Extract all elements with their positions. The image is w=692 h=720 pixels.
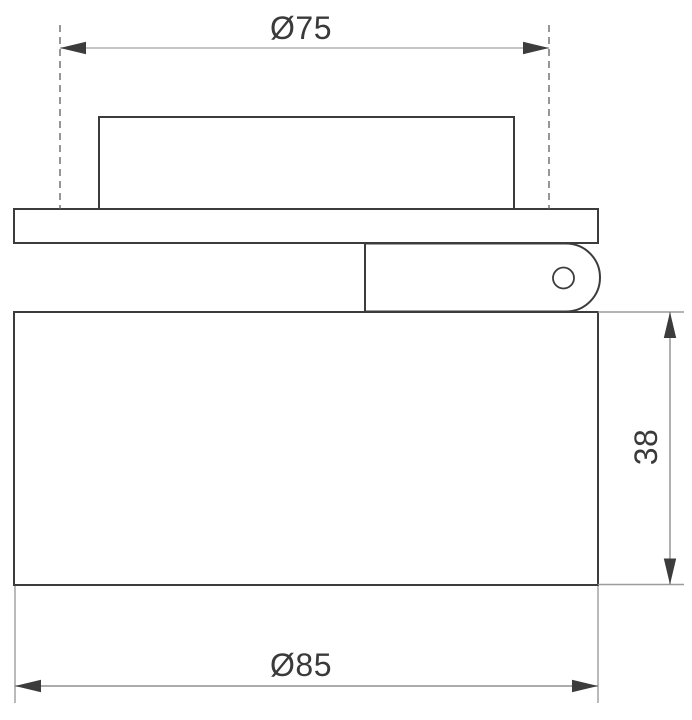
mounting-flange bbox=[14, 209, 598, 243]
dim75-arrow-left-icon bbox=[60, 42, 86, 54]
fixture-body bbox=[14, 312, 598, 585]
drawing-svg: Ø75 38 Ø85 bbox=[0, 0, 692, 720]
hinge-bracket bbox=[365, 244, 600, 312]
dim85-arrow-right-icon bbox=[572, 680, 598, 692]
dim38-arrow-up-icon bbox=[664, 312, 676, 338]
dim85-arrow-left-icon bbox=[15, 680, 41, 692]
dim85-label: Ø85 bbox=[270, 647, 332, 683]
dim75-label: Ø75 bbox=[270, 10, 332, 46]
hinge-pin-hole bbox=[553, 268, 574, 289]
dim38-label: 38 bbox=[628, 429, 664, 466]
dim38-arrow-down-icon bbox=[664, 559, 676, 585]
fixture-top-housing bbox=[99, 117, 514, 209]
technical-drawing-canvas: Ø75 38 Ø85 bbox=[0, 0, 692, 720]
dim75-arrow-right-icon bbox=[523, 42, 549, 54]
